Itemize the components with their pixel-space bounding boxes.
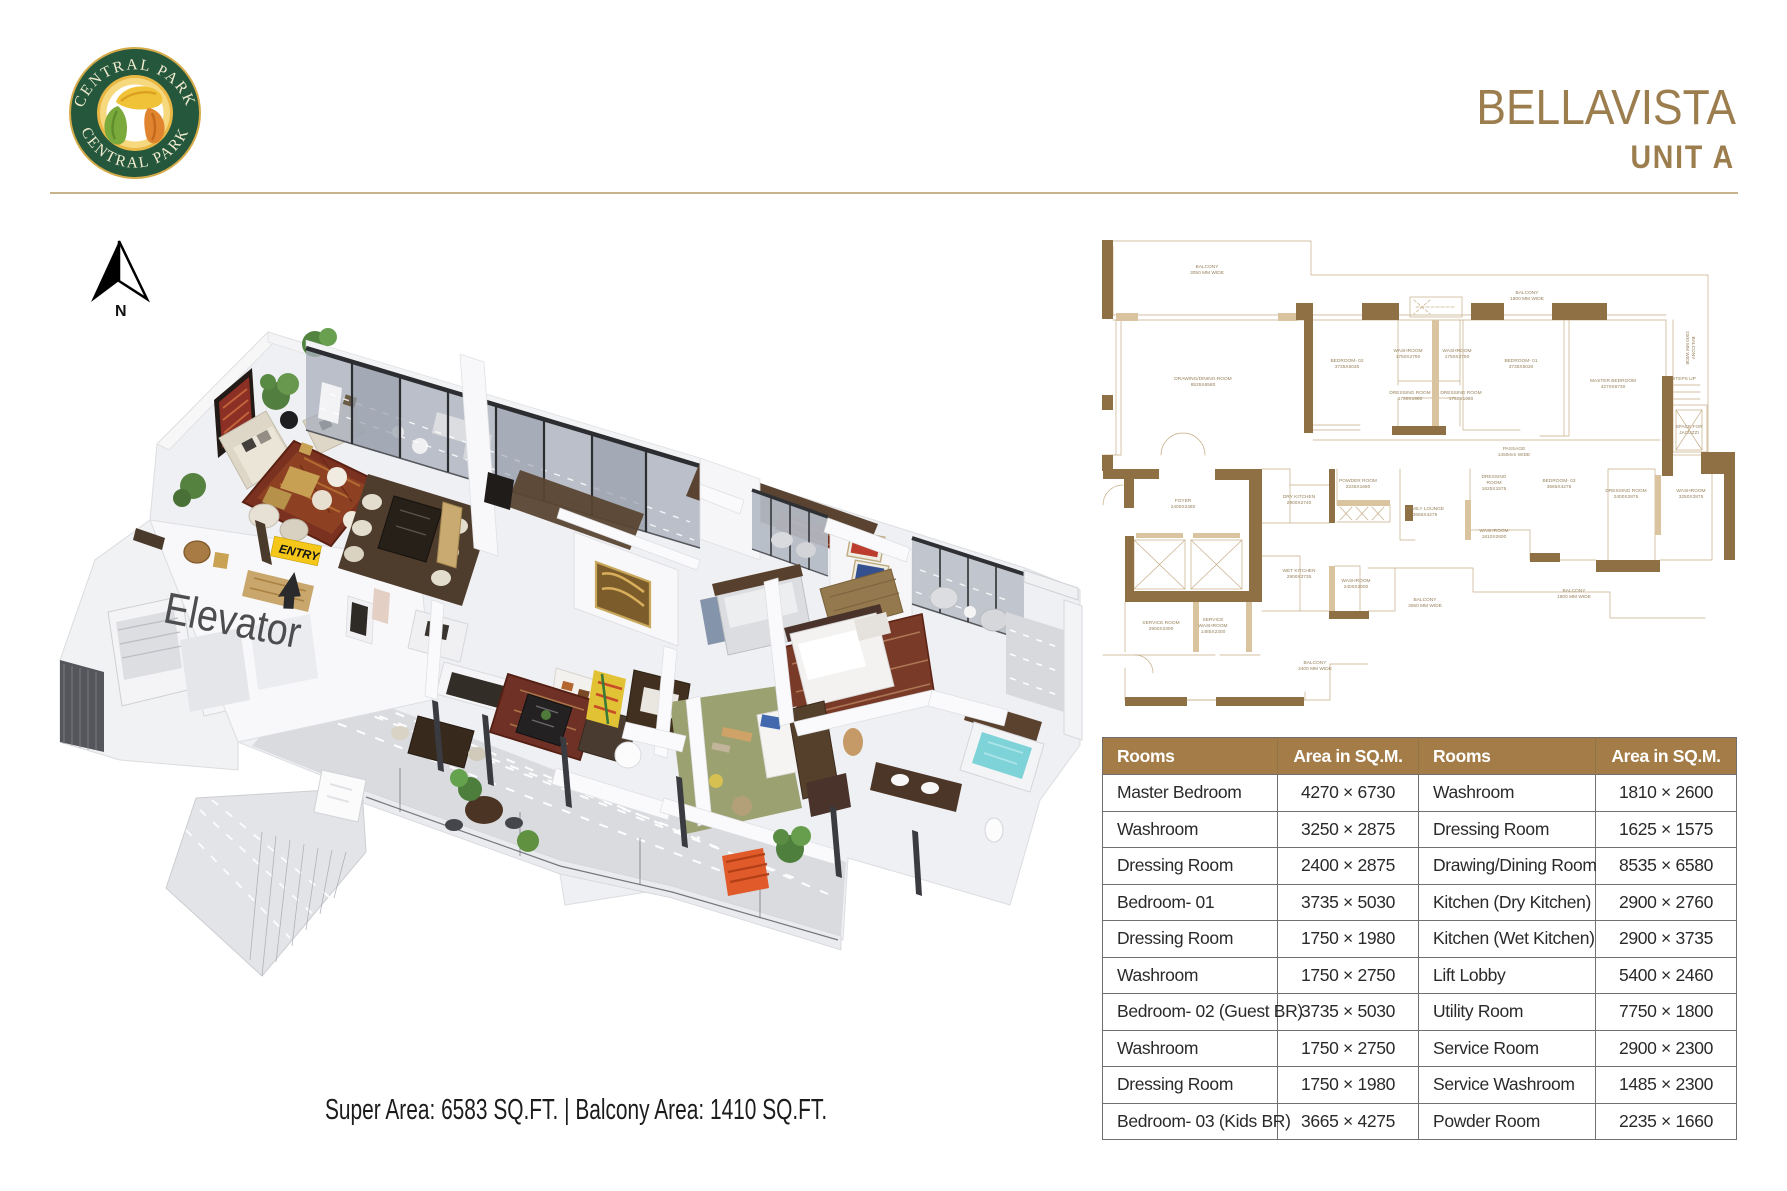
svg-text:4270X6730: 4270X6730	[1601, 384, 1626, 390]
svg-text:WASHROOM: WASHROOM	[1676, 488, 1705, 494]
svg-text:BEDROOM- 01: BEDROOM- 01	[1504, 358, 1537, 364]
svg-text:BEDROOM- 03: BEDROOM- 03	[1542, 478, 1575, 484]
svg-text:SERVICE: SERVICE	[1203, 617, 1224, 623]
svg-text:BALCONY: BALCONY	[1563, 588, 1587, 594]
svg-text:POWDER ROOM: POWDER ROOM	[1339, 478, 1377, 484]
svg-text:WASHROOM: WASHROOM	[1479, 528, 1508, 534]
svg-text:JACUZZI: JACUZZI	[1679, 430, 1699, 436]
svg-text:WASHROOM: WASHROOM	[1442, 348, 1471, 354]
svg-text:WASHROOM: WASHROOM	[1393, 348, 1422, 354]
svg-text:WET KITCHEN: WET KITCHEN	[1283, 568, 1316, 574]
svg-text:DRAWING/DINING ROOM: DRAWING/DINING ROOM	[1174, 376, 1231, 382]
svg-text:BALCONY: BALCONY	[1414, 597, 1438, 603]
svg-text:2400X2875: 2400X2875	[1614, 494, 1639, 500]
svg-text:1625X1575: 1625X1575	[1482, 486, 1507, 492]
svg-text:DRESSING ROOM: DRESSING ROOM	[1440, 390, 1481, 396]
svg-text:BALCONY: BALCONY	[1196, 264, 1220, 270]
svg-text:FOYER: FOYER	[1175, 498, 1192, 504]
svg-text:1750X2750: 1750X2750	[1445, 354, 1470, 360]
svg-text:PASSAGE: PASSAGE	[1503, 446, 1526, 452]
svg-text:2400X2460: 2400X2460	[1171, 504, 1196, 510]
svg-text:DRY KITCHEN: DRY KITCHEN	[1283, 494, 1316, 500]
svg-text:2000 MM WIDE: 2000 MM WIDE	[1684, 331, 1690, 365]
svg-text:DRESSING ROOM: DRESSING ROOM	[1389, 390, 1430, 396]
svg-text:SPACE FOR: SPACE FOR	[1675, 424, 1703, 430]
svg-text:BEDROOM- 02: BEDROOM- 02	[1330, 358, 1363, 364]
svg-text:8535X6580: 8535X6580	[1191, 382, 1216, 388]
svg-text:1750X1980: 1750X1980	[1449, 396, 1474, 402]
svg-text:1810X2600: 1810X2600	[1482, 534, 1507, 540]
svg-text:1750X1980: 1750X1980	[1398, 396, 1423, 402]
svg-text:2900X3735: 2900X3735	[1287, 574, 1312, 580]
svg-text:3050 MM WIDE: 3050 MM WIDE	[1408, 603, 1442, 609]
svg-text:2900X2300: 2900X2300	[1149, 626, 1174, 632]
svg-text:1800 MM WIDE: 1800 MM WIDE	[1510, 296, 1544, 302]
svg-text:SERVICE ROOM: SERVICE ROOM	[1142, 620, 1179, 626]
svg-text:1750X2750: 1750X2750	[1396, 354, 1421, 360]
svg-text:BALCONY: BALCONY	[1690, 337, 1696, 361]
svg-text:2400 MM WIDE: 2400 MM WIDE	[1298, 666, 1332, 672]
svg-text:2400X2000: 2400X2000	[1344, 584, 1369, 590]
svg-text:MASTER BEDROOM: MASTER BEDROOM	[1590, 378, 1636, 384]
svg-text:2900X2740: 2900X2740	[1287, 500, 1312, 506]
svg-text:WASHROOM: WASHROOM	[1198, 623, 1227, 629]
svg-text:BALCONY: BALCONY	[1304, 660, 1328, 666]
svg-text:WASHROOM: WASHROOM	[1341, 578, 1370, 584]
svg-text:3050 MM WIDE: 3050 MM WIDE	[1190, 270, 1224, 276]
svg-text:STEPS UP: STEPS UP	[1672, 376, 1696, 382]
svg-text:DRESSING ROOM: DRESSING ROOM	[1605, 488, 1646, 494]
svg-text:3250X2875: 3250X2875	[1679, 494, 1704, 500]
svg-text:1800 MM WIDE: 1800 MM WIDE	[1557, 594, 1591, 600]
svg-text:3665X4275: 3665X4275	[1413, 512, 1438, 518]
svg-text:2235X1660: 2235X1660	[1346, 484, 1371, 490]
svg-text:3735X5030: 3735X5030	[1335, 364, 1360, 370]
svg-text:DRESSING: DRESSING	[1481, 474, 1506, 480]
svg-text:1450mm WIDE: 1450mm WIDE	[1498, 452, 1531, 458]
svg-text:ROOM: ROOM	[1487, 480, 1502, 486]
svg-text:3665X4275: 3665X4275	[1547, 484, 1572, 490]
svg-text:FAMILY LOUNGE: FAMILY LOUNGE	[1406, 506, 1444, 512]
svg-text:3735X5030: 3735X5030	[1509, 364, 1534, 370]
svg-text:BALCONY: BALCONY	[1516, 290, 1540, 296]
svg-text:1485X2300: 1485X2300	[1201, 629, 1226, 635]
